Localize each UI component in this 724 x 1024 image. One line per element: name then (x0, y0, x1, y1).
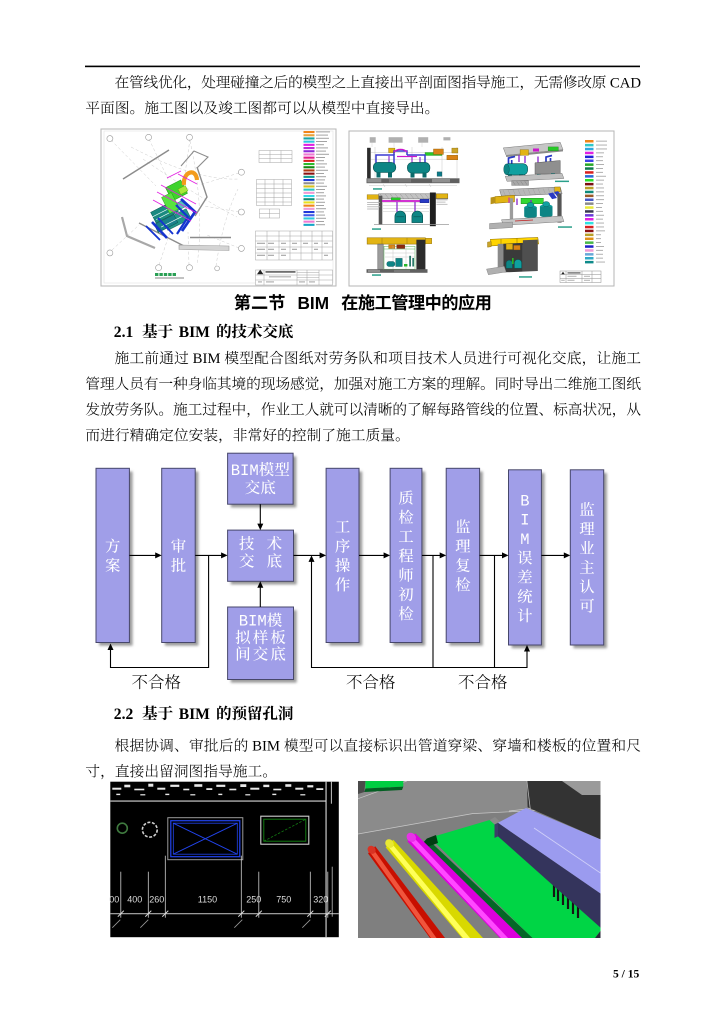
svg-text:1150: 1150 (198, 895, 217, 905)
svg-text:5 / 15: 5 / 15 (613, 969, 639, 981)
svg-text:BIM: BIM (231, 462, 259, 480)
svg-text:320: 320 (313, 895, 328, 905)
svg-text:BIM: BIM (193, 351, 221, 367)
svg-text:CAD: CAD (610, 75, 641, 91)
svg-text:2.2: 2.2 (114, 706, 134, 723)
svg-text:B: B (520, 492, 529, 510)
svg-text:260: 260 (149, 895, 164, 905)
svg-text:250: 250 (246, 895, 261, 905)
svg-text:BIM: BIM (252, 739, 280, 755)
svg-text:750: 750 (276, 895, 291, 905)
svg-text:00: 00 (109, 895, 119, 905)
svg-text:BIM: BIM (179, 324, 210, 341)
svg-text:M: M (520, 531, 529, 549)
svg-text:BIM: BIM (298, 293, 330, 313)
svg-text:2.1: 2.1 (114, 324, 134, 341)
svg-text:I: I (520, 512, 529, 530)
svg-text:BIM: BIM (179, 706, 210, 723)
svg-text:BIM: BIM (239, 613, 267, 631)
svg-text:400: 400 (127, 895, 142, 905)
